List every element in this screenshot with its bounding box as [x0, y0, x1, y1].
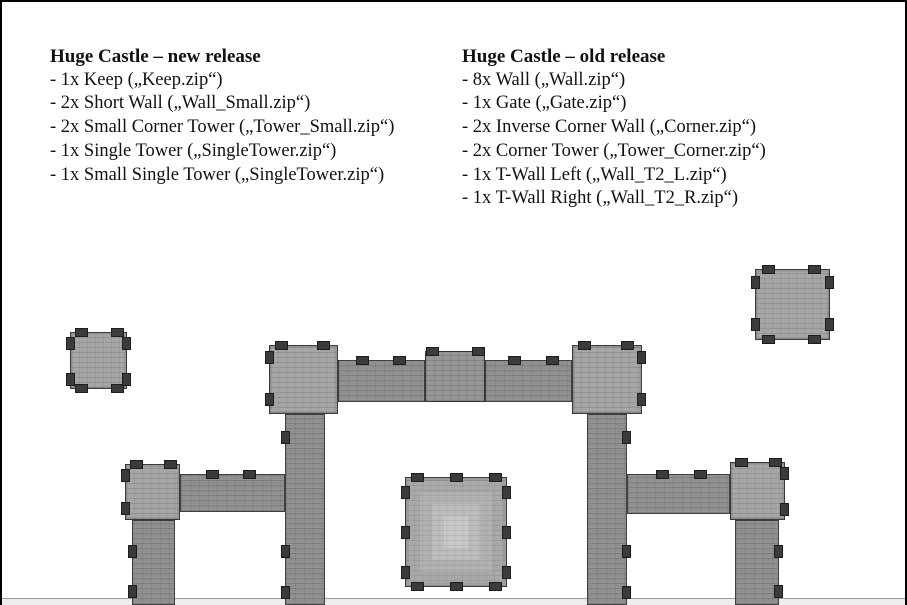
battlement-merlon	[637, 393, 646, 406]
single-tower-top-right	[755, 269, 830, 340]
gate-wall-right-segment	[485, 360, 572, 402]
document-page: Huge Castle – new release - 1x Keep („Ke…	[0, 0, 907, 605]
gate-corner-tower-left	[269, 345, 338, 414]
battlement-merlon	[243, 470, 256, 479]
battlement-merlon	[502, 566, 511, 579]
battlement-merlon	[75, 384, 88, 393]
battlement-merlon	[265, 351, 274, 364]
battlement-merlon	[762, 265, 775, 274]
battlement-merlon	[656, 470, 669, 479]
wall-vertical-inner-right	[587, 414, 627, 605]
battlement-merlon	[75, 328, 88, 337]
battlement-merlon	[121, 469, 130, 482]
battlement-merlon	[111, 328, 124, 337]
corner-tower-lower-left	[125, 464, 180, 520]
battlement-merlon	[275, 341, 288, 350]
battlement-merlon	[774, 585, 783, 598]
battlement-merlon	[508, 356, 521, 365]
battlement-merlon	[489, 582, 502, 591]
wall-horizontal-lower-right	[627, 474, 730, 514]
battlement-merlon	[578, 341, 591, 350]
battlement-merlon	[825, 318, 834, 331]
battlement-merlon	[281, 545, 290, 558]
battlement-merlon	[622, 431, 631, 444]
battlement-merlon	[66, 337, 75, 350]
battlement-merlon	[411, 473, 424, 482]
battlement-merlon	[780, 503, 789, 516]
small-single-tower-top-left	[70, 332, 127, 389]
battlement-merlon	[426, 347, 439, 356]
wall-vertical-far-left	[132, 520, 175, 605]
battlement-merlon	[694, 470, 707, 479]
battlement-merlon	[502, 486, 511, 499]
battlement-merlon	[128, 545, 137, 558]
battlement-merlon	[450, 473, 463, 482]
battlement-merlon	[621, 341, 634, 350]
battlement-merlon	[825, 276, 834, 289]
battlement-merlon	[128, 585, 137, 598]
battlement-merlon	[762, 335, 775, 344]
battlement-merlon	[206, 470, 219, 479]
battlement-merlon	[130, 460, 143, 469]
battlement-merlon	[66, 373, 75, 386]
battlement-merlon	[401, 526, 410, 539]
battlement-merlon	[751, 318, 760, 331]
battlement-merlon	[780, 467, 789, 480]
battlement-merlon	[122, 337, 131, 350]
wall-vertical-inner-left	[285, 414, 325, 605]
battlement-merlon	[808, 335, 821, 344]
battlement-merlon	[401, 566, 410, 579]
battlement-merlon	[808, 265, 821, 274]
battlement-merlon	[769, 458, 782, 467]
battlement-merlon	[450, 582, 463, 591]
battlement-merlon	[546, 356, 559, 365]
battlement-merlon	[489, 473, 502, 482]
battlement-merlon	[622, 545, 631, 558]
battlement-merlon	[774, 545, 783, 558]
battlement-merlon	[356, 356, 369, 365]
battlement-merlon	[401, 486, 410, 499]
battlement-merlon	[281, 586, 290, 599]
battlement-merlon	[317, 341, 330, 350]
battlement-merlon	[472, 347, 485, 356]
battlement-merlon	[121, 502, 130, 515]
battlement-merlon	[122, 373, 131, 386]
battlement-merlon	[502, 526, 511, 539]
battlement-merlon	[751, 276, 760, 289]
battlement-merlon	[265, 393, 274, 406]
wall-vertical-far-right	[735, 520, 779, 605]
battlement-merlon	[622, 586, 631, 599]
gate-corner-tower-right	[572, 345, 642, 414]
battlement-merlon	[393, 356, 406, 365]
battlement-merlon	[735, 458, 748, 467]
castle-diagram	[2, 2, 905, 605]
corner-tower-lower-right	[730, 462, 785, 520]
battlement-merlon	[411, 582, 424, 591]
gate-middle-section	[425, 351, 485, 402]
wall-horizontal-lower-left	[180, 474, 285, 512]
keep	[405, 477, 507, 587]
battlement-merlon	[281, 431, 290, 444]
battlement-merlon	[637, 351, 646, 364]
battlement-merlon	[164, 460, 177, 469]
gate-wall-left-segment	[338, 360, 425, 402]
